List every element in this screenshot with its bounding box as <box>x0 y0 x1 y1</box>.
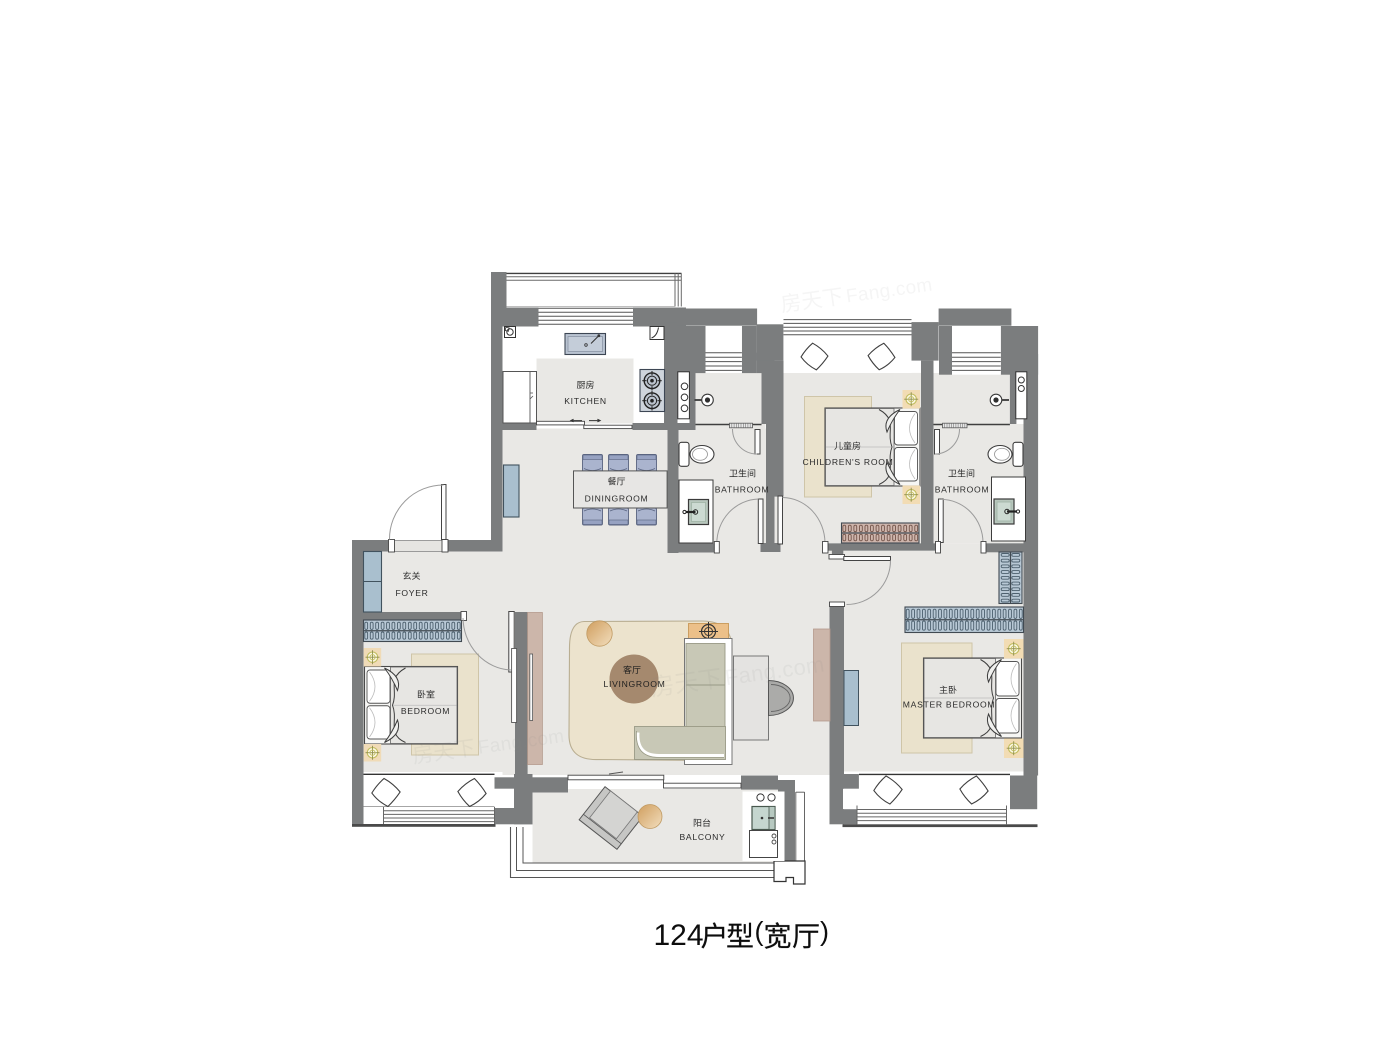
svg-text:BALCONY: BALCONY <box>680 832 726 842</box>
svg-text:124: 124 <box>654 919 704 952</box>
svg-text:FOYER: FOYER <box>395 588 428 598</box>
svg-text:MASTER BEDROOM: MASTER BEDROOM <box>903 700 995 710</box>
svg-text:BATHROOM: BATHROOM <box>715 484 770 494</box>
svg-text:): ) <box>820 917 829 947</box>
svg-text:KITCHEN: KITCHEN <box>564 396 607 406</box>
svg-text:(: ( <box>755 917 764 947</box>
svg-text:DININGROOM: DININGROOM <box>585 494 649 504</box>
svg-text:LIVINGROOM: LIVINGROOM <box>604 679 666 689</box>
svg-text:BEDROOM: BEDROOM <box>401 706 450 716</box>
svg-text:CHILDREN'S ROOM: CHILDREN'S ROOM <box>803 457 894 467</box>
svg-text:BATHROOM: BATHROOM <box>935 484 990 494</box>
